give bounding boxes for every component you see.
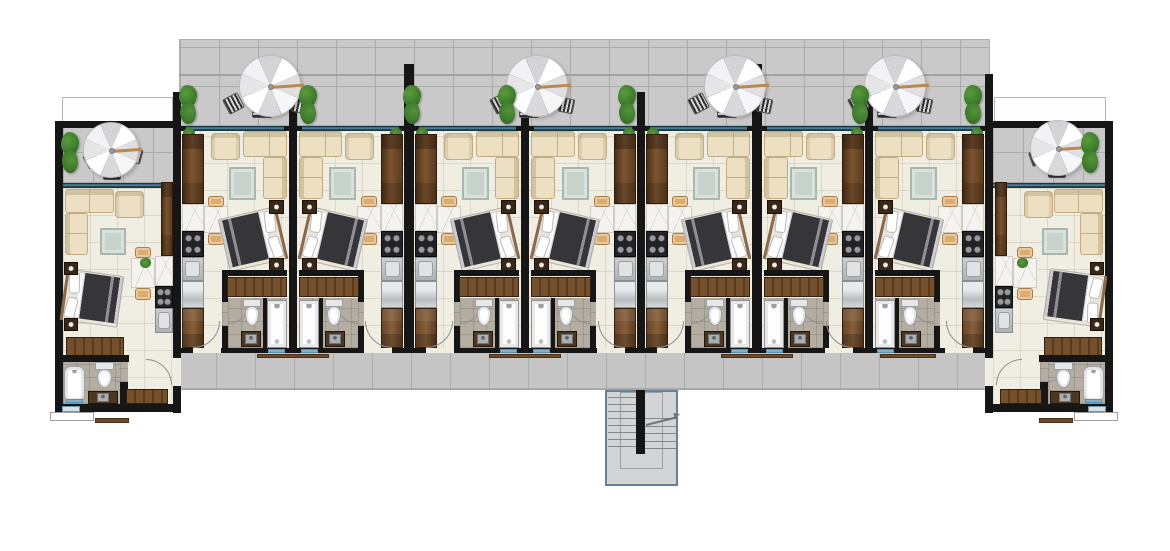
dining-chair: [942, 196, 958, 207]
kitchen-tall-cabinet: [182, 134, 204, 204]
vanity-sink: [97, 393, 109, 402]
wall: [319, 298, 323, 348]
bathtub: [1083, 366, 1104, 402]
wall: [784, 298, 788, 348]
stair-step: [608, 397, 637, 398]
stove: [614, 231, 636, 257]
wardrobe: [764, 277, 824, 297]
stove: [182, 231, 204, 257]
kitchen-tall-cabinet: [161, 182, 173, 256]
armchair: [926, 133, 955, 160]
nightstand: [302, 200, 317, 214]
entry-gap: [945, 348, 973, 353]
entry-gap: [193, 348, 221, 353]
balcony-railing: [62, 97, 173, 122]
planter-foliage: [300, 102, 316, 124]
kitchen-sink-basin: [998, 312, 1010, 329]
rug: [562, 167, 589, 200]
vanity-sink: [708, 334, 720, 344]
kitchen-sink-basin: [385, 261, 400, 277]
planter: [403, 85, 421, 125]
wardrobe: [227, 277, 287, 297]
stove: [962, 231, 984, 257]
wall: [637, 92, 645, 353]
dining-chair: [942, 233, 958, 245]
porch-step: [50, 412, 94, 421]
kitchen-sink-basin: [418, 261, 433, 277]
floor-plan: [0, 0, 1170, 551]
wall: [531, 270, 595, 276]
wardrobe: [459, 277, 519, 297]
stair-step: [608, 439, 637, 440]
entry-gap: [173, 358, 181, 386]
wall: [895, 298, 899, 348]
fridge: [842, 281, 864, 308]
sofa-l-long: [1054, 189, 1103, 213]
dining-chair: [441, 196, 457, 207]
sofa-l-long: [476, 131, 519, 157]
kitchen-counter: [995, 256, 1013, 286]
dining-chair: [1017, 247, 1033, 258]
umbrella-hub: [1056, 146, 1062, 152]
kitchen-counter: [182, 204, 204, 231]
kitchen-counter: [646, 204, 668, 231]
umbrella-arm: [895, 84, 929, 89]
sofa-l-long: [65, 189, 114, 213]
armchair: [345, 133, 374, 160]
shower: [730, 300, 750, 348]
stair-step: [645, 433, 676, 434]
porch-mat: [1039, 418, 1073, 423]
stove: [415, 231, 437, 257]
bath-door-gap: [590, 302, 596, 326]
rug: [1042, 228, 1068, 255]
sofa-l-short: [299, 157, 323, 199]
wall: [55, 355, 129, 362]
bed-pillow: [69, 272, 80, 293]
porch-step: [1074, 412, 1118, 421]
window-band: [993, 183, 1105, 188]
shower: [499, 300, 519, 348]
dining-chair: [361, 196, 377, 207]
porch-mat: [95, 418, 129, 423]
sofa-l-long: [764, 131, 803, 157]
fridge: [182, 281, 204, 308]
planter: [498, 85, 516, 125]
wall: [764, 270, 828, 276]
kitchen-counter: [614, 204, 636, 231]
entry-gap: [825, 348, 853, 353]
patio-umbrella: [1030, 120, 1086, 176]
vanity-sink: [561, 334, 573, 344]
kitchen-sink-basin: [185, 261, 200, 277]
patio-umbrella: [864, 55, 926, 117]
stove: [842, 231, 864, 257]
shower-doormat: [301, 349, 318, 353]
sofa-l-short: [531, 157, 555, 199]
vanity-sink: [905, 334, 917, 344]
nightstand: [64, 262, 78, 275]
armchair: [806, 133, 835, 160]
entry-gap: [364, 348, 392, 353]
wardrobe: [1044, 337, 1102, 356]
fridge: [381, 281, 403, 308]
bath-door-gap: [934, 302, 940, 326]
kitchen-counter: [962, 204, 984, 231]
corridor: [177, 353, 987, 390]
bath-door-gap: [358, 302, 364, 326]
rug: [693, 167, 720, 200]
vanity-sink: [794, 334, 806, 344]
nightstand: [269, 200, 284, 214]
planter-foliage: [62, 150, 78, 173]
kitchen-tall-cabinet: [381, 134, 403, 204]
dining-chair: [208, 196, 224, 207]
wall: [686, 270, 750, 276]
fridge: [415, 281, 437, 308]
stove: [995, 286, 1013, 308]
doormat: [489, 354, 561, 358]
shower-doormat: [731, 349, 748, 353]
stair-step: [608, 425, 637, 426]
stair-step: [608, 418, 637, 419]
wall: [551, 298, 555, 348]
patio-umbrella: [704, 55, 766, 117]
bed-duvet: [79, 273, 123, 324]
shower-doormat: [766, 349, 783, 353]
kitchen-sink-basin: [846, 261, 861, 277]
wardrobe: [299, 277, 359, 297]
planter: [1081, 132, 1099, 174]
umbrella-arm: [111, 148, 142, 153]
doormat: [721, 354, 793, 358]
planter: [179, 85, 197, 125]
armchair: [578, 133, 607, 160]
bathtub: [64, 366, 85, 402]
planter: [964, 85, 982, 125]
doormat: [257, 354, 329, 358]
kitchen-tall-cabinet: [962, 134, 984, 204]
umbrella-hub: [109, 148, 115, 154]
bath-door-gap: [120, 362, 128, 382]
armchair: [211, 133, 240, 160]
nightstand: [534, 200, 549, 214]
kitchen-counter: [415, 204, 437, 231]
shower: [875, 300, 895, 348]
wall: [875, 270, 939, 276]
nightstand: [501, 200, 516, 214]
umbrella-hub: [733, 84, 739, 90]
nightstand: [732, 200, 747, 214]
fridge: [614, 281, 636, 308]
planter: [299, 85, 317, 125]
shower: [764, 300, 784, 348]
wall: [1039, 355, 1113, 362]
rug: [100, 228, 126, 255]
entry-gap: [985, 358, 993, 386]
bath-door-gap: [1040, 362, 1048, 382]
sofa-l-short: [263, 157, 287, 199]
rug: [910, 167, 937, 200]
umbrella-arm: [537, 84, 571, 89]
stair-step: [608, 411, 637, 412]
umbrella-hub: [893, 84, 899, 90]
wardrobe: [66, 337, 124, 356]
rug: [462, 167, 489, 200]
kitchen-tall-cabinet: [415, 134, 437, 204]
wall: [865, 92, 873, 353]
rug: [229, 167, 256, 200]
entry-gap: [426, 348, 454, 353]
planter-foliage: [965, 102, 981, 124]
sofa-l-long: [243, 131, 287, 157]
armchair: [1024, 191, 1053, 218]
planter: [61, 132, 79, 174]
nightstand: [64, 318, 78, 331]
wall: [521, 92, 529, 353]
kitchen-sink-basin: [649, 261, 664, 277]
shower: [299, 300, 319, 348]
dining-chair: [672, 196, 688, 207]
stair-step: [608, 446, 637, 447]
sofa-l-long: [707, 131, 750, 157]
dining-chair: [594, 196, 610, 207]
sofa-l-short: [726, 157, 750, 199]
nightstand: [767, 200, 782, 214]
sofa-l-short: [764, 157, 788, 199]
kitchen-tall-cabinet: [646, 134, 668, 204]
wardrobe: [126, 389, 168, 404]
shower-doormat: [877, 349, 894, 353]
doormat: [880, 354, 936, 358]
armchair: [675, 133, 704, 160]
sofa-l-short: [65, 213, 88, 255]
umbrella-arm: [735, 84, 769, 89]
window-band: [63, 183, 173, 188]
kitchen-counter: [381, 204, 403, 231]
planter: [851, 85, 869, 125]
stair-direction-arrow: [673, 411, 680, 418]
wardrobe: [531, 277, 591, 297]
planter-foliage: [180, 102, 196, 124]
dining-chair: [135, 247, 151, 258]
fridge: [962, 281, 984, 308]
vanity-sink: [329, 334, 341, 344]
patio-umbrella: [239, 55, 301, 117]
entry-gap: [597, 348, 625, 353]
vanity-sink: [477, 334, 489, 344]
sofa-l-short: [1080, 213, 1103, 255]
kitchen-tall-cabinet: [614, 134, 636, 204]
planter: [618, 85, 636, 125]
nightstand: [1090, 262, 1104, 275]
planter-foliage: [404, 102, 420, 124]
kitchen-tall-cabinet: [995, 182, 1007, 256]
wardrobe: [690, 277, 750, 297]
umbrella-hub: [535, 84, 541, 90]
stove: [155, 286, 173, 308]
armchair: [444, 133, 473, 160]
umbrella-hub: [268, 84, 274, 90]
kitchen-sink-basin: [966, 261, 981, 277]
vanity-sink: [1059, 393, 1071, 402]
kitchen-counter: [842, 204, 864, 231]
stair-step: [608, 432, 637, 433]
shower: [267, 300, 287, 348]
wall: [636, 390, 645, 454]
bathtub-mat: [66, 399, 83, 403]
sofa-l-short: [495, 157, 519, 199]
dining-chair: [1017, 288, 1033, 300]
shower-doormat: [500, 349, 517, 353]
nightstand: [1090, 318, 1104, 331]
nightstand: [878, 200, 893, 214]
planter-foliage: [1082, 150, 1098, 173]
sofa-l-short: [875, 157, 899, 199]
rug: [329, 167, 356, 200]
armchair: [115, 191, 144, 218]
vanity-sink: [245, 334, 257, 344]
wardrobe: [1000, 389, 1042, 404]
wall: [299, 270, 363, 276]
planter-foliage: [852, 102, 868, 124]
bed-duvet: [1044, 270, 1088, 321]
wall: [1105, 121, 1113, 412]
wall: [289, 92, 297, 353]
kitchen-tall-cabinet: [842, 134, 864, 204]
dining-chair: [822, 196, 838, 207]
wall: [223, 270, 287, 276]
wardrobe: [875, 277, 935, 297]
stair-step: [645, 441, 676, 442]
dining-chair: [135, 288, 151, 300]
stair-step: [645, 448, 676, 449]
wall: [173, 348, 993, 353]
sofa-l-long: [299, 131, 342, 157]
patio-umbrella: [83, 122, 139, 178]
shower-doormat: [268, 349, 285, 353]
kitchen-sink-basin: [618, 261, 633, 277]
kitchen-counter: [155, 256, 173, 286]
fridge: [646, 281, 668, 308]
kitchen-sink-basin: [158, 312, 170, 329]
bathtub-mat: [1085, 399, 1102, 403]
stair-step: [608, 404, 637, 405]
sofa-l-long: [875, 131, 923, 157]
planter-foliage: [619, 102, 635, 124]
planter-foliage: [499, 102, 515, 124]
stove: [646, 231, 668, 257]
sofa-l-long: [531, 131, 575, 157]
shower-doormat: [533, 349, 550, 353]
wall: [455, 270, 519, 276]
balcony-railing: [994, 97, 1106, 122]
stove: [381, 231, 403, 257]
stair-step: [645, 426, 676, 427]
rug: [790, 167, 817, 200]
shower: [531, 300, 551, 348]
entry-gap: [657, 348, 685, 353]
